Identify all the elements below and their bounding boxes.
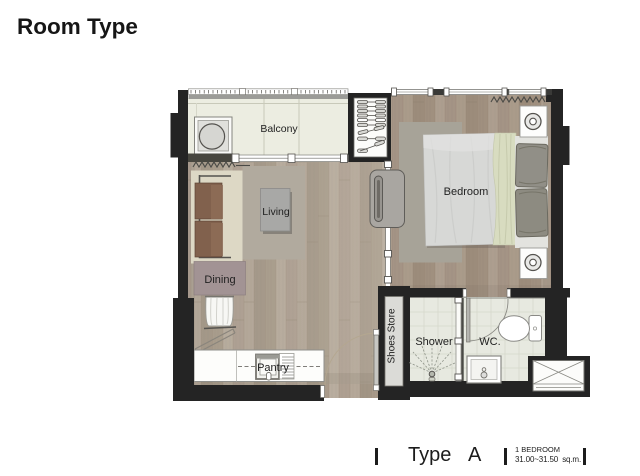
svg-text:Shoes Store: Shoes Store	[387, 308, 398, 363]
svg-text:Dining: Dining	[204, 274, 235, 286]
svg-text:Bedroom: Bedroom	[444, 186, 489, 198]
svg-text:Living: Living	[262, 206, 290, 218]
svg-text:WC.: WC.	[479, 336, 500, 348]
svg-text:Pantry: Pantry	[257, 362, 289, 374]
svg-text:Balcony: Balcony	[260, 123, 298, 135]
svg-text:Shower: Shower	[415, 336, 453, 348]
